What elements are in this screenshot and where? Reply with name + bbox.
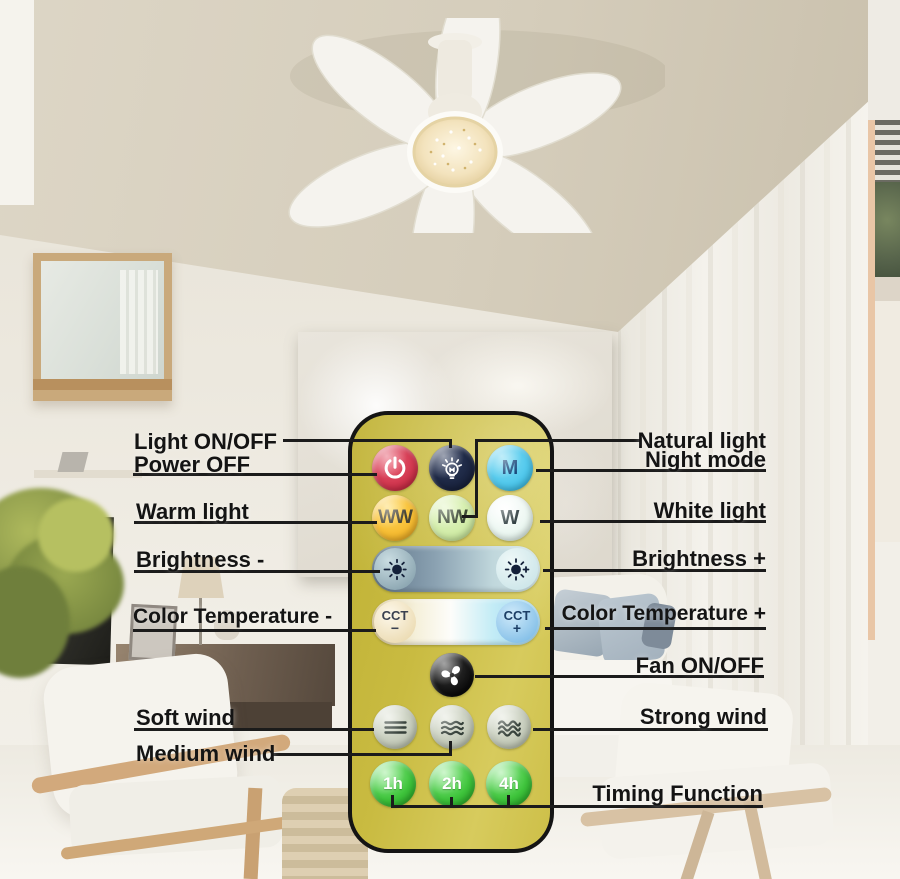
timer-4h-label: 4h xyxy=(499,774,519,794)
medium-wind-button[interactable] xyxy=(430,705,474,749)
mode-button[interactable]: M xyxy=(487,445,533,491)
soft-wind-button[interactable] xyxy=(373,705,417,749)
label-fan-on-off: Fan ON/OFF xyxy=(636,653,764,679)
callout-line-light-onoff xyxy=(283,439,452,442)
label-strong-wind: Strong wind xyxy=(640,704,767,730)
bulb-icon xyxy=(438,453,466,483)
annotated-product-image: M WW NW W xyxy=(0,0,900,879)
callout-line-timing-drop-2h xyxy=(450,797,453,807)
cct-plus-sign: + xyxy=(513,622,521,634)
ceiling-fan xyxy=(245,18,665,233)
callout-line-color-temp-minus xyxy=(133,629,376,632)
label-brightness-plus: Brightness + xyxy=(632,546,766,572)
label-night-mode: Night mode xyxy=(645,447,766,473)
callout-line-natural-light xyxy=(477,439,640,442)
remote-control: M WW NW W xyxy=(348,411,554,853)
callout-line-light-onoff-drop xyxy=(449,439,452,448)
white-button[interactable]: W xyxy=(487,495,533,541)
desk-shelf xyxy=(34,470,142,478)
callout-line-timing-drop-1h xyxy=(391,795,394,807)
label-soft-wind: Soft wind xyxy=(136,705,235,731)
warm-white-label: WW xyxy=(378,507,412,529)
natural-white-button[interactable]: NW xyxy=(429,495,475,541)
wind-strong-icon xyxy=(495,715,524,740)
white-label: W xyxy=(501,507,520,530)
cct-minus-sign: − xyxy=(391,622,399,634)
strong-wind-button[interactable] xyxy=(487,705,531,749)
label-color-temperature-plus: Color Temperature + xyxy=(562,602,766,626)
label-warm-light: Warm light xyxy=(136,499,249,525)
sun-dim-icon xyxy=(382,556,409,583)
power-icon xyxy=(381,454,409,482)
cct-minus-button[interactable]: CCT − xyxy=(374,601,416,643)
label-white-light: White light xyxy=(654,498,766,524)
wind-soft-icon xyxy=(381,715,410,740)
timer-2h-label: 2h xyxy=(442,774,462,794)
fan-icon xyxy=(437,660,467,690)
label-brightness-minus: Brightness - xyxy=(136,547,264,573)
sun-bright-icon xyxy=(504,556,531,583)
natural-white-label: NW xyxy=(437,507,467,529)
mode-button-label: M xyxy=(502,457,519,480)
callout-line-color-temp-plus xyxy=(545,627,766,630)
callout-line-natural-light-drop xyxy=(475,439,478,518)
window-frame xyxy=(868,120,875,640)
label-color-temperature-minus: Color Temperature - xyxy=(133,605,332,629)
callout-line-natural-light-elbow xyxy=(462,515,478,518)
callout-line-timing-drop-4h xyxy=(507,795,510,807)
laptop xyxy=(58,452,89,472)
cabinet-books xyxy=(120,270,158,374)
window-frame-top xyxy=(868,0,900,120)
light-power-button[interactable] xyxy=(372,445,418,491)
cct-rocker: CCT − CCT + xyxy=(372,599,540,645)
cabinet-shelf xyxy=(33,379,172,390)
cct-plus-button[interactable]: CCT + xyxy=(496,601,538,643)
house-plant xyxy=(0,488,126,658)
label-medium-wind: Medium wind xyxy=(136,741,275,767)
brightness-up-button[interactable] xyxy=(496,548,538,590)
brightness-rocker xyxy=(372,546,540,592)
brightness-down-button[interactable] xyxy=(374,548,416,590)
wind-medium-icon xyxy=(438,715,467,740)
callout-line-medium-wind xyxy=(273,753,452,756)
label-timing-function: Timing Function xyxy=(592,781,763,807)
wall-pillar xyxy=(0,0,34,205)
callout-line-medium-wind-drop xyxy=(449,741,452,755)
light-on-off-button[interactable] xyxy=(429,445,475,491)
fan-power-button[interactable] xyxy=(430,653,474,697)
warm-white-button[interactable]: WW xyxy=(372,495,418,541)
timer-1h-label: 1h xyxy=(383,774,403,794)
label-power-off: Power OFF xyxy=(134,452,250,478)
